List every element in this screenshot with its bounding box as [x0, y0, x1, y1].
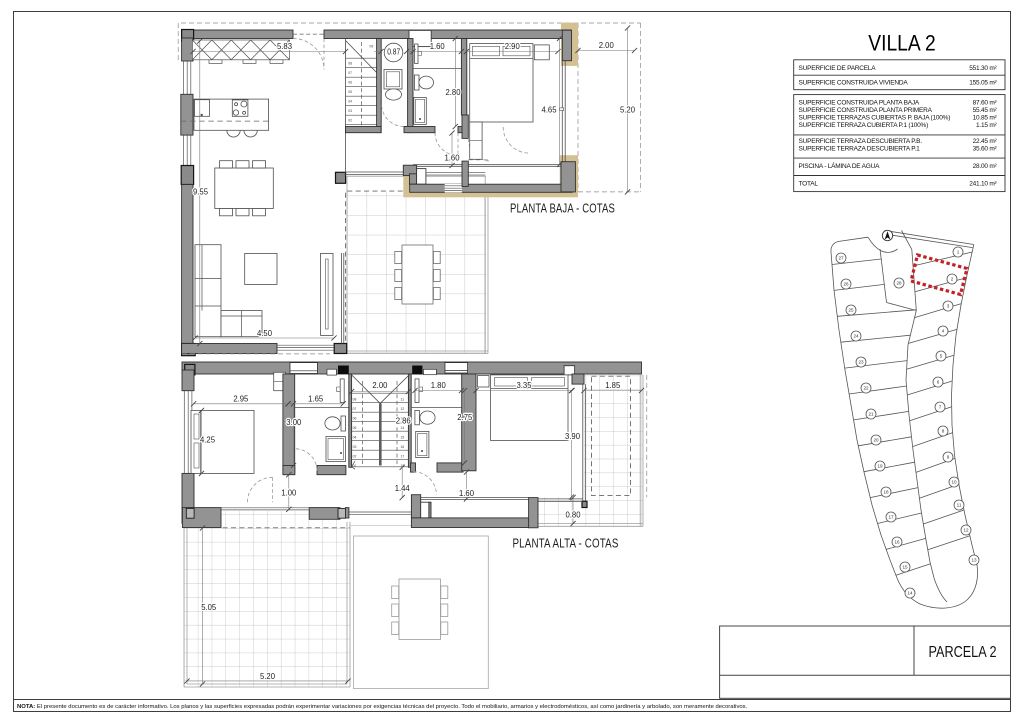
svg-text:16: 16 [894, 540, 900, 545]
svg-text:PLANTA ALTA - COTAS: PLANTA ALTA - COTAS [513, 537, 619, 551]
svg-text:5.05: 5.05 [201, 603, 217, 612]
svg-text:14: 14 [401, 426, 405, 430]
svg-text:2.86: 2.86 [396, 417, 412, 426]
svg-text:18: 18 [883, 490, 889, 495]
svg-text:04: 04 [353, 436, 357, 440]
svg-text:SUPERFICIE CONSTRUIDA PLANTA B: SUPERFICIE CONSTRUIDA PLANTA BAJA [799, 99, 920, 106]
svg-text:2.75: 2.75 [457, 413, 473, 422]
svg-text:35.60 m²: 35.60 m² [973, 146, 998, 153]
svg-text:07: 07 [348, 71, 352, 75]
svg-text:25: 25 [848, 308, 854, 313]
svg-text:1.15 m²: 1.15 m² [976, 122, 998, 129]
svg-text:SUPERFICIE TERRAZA CUBIERTA P.: SUPERFICIE TERRAZA CUBIERTA P.1 (100%) [799, 122, 929, 129]
svg-text:23: 23 [858, 360, 864, 365]
svg-text:0.80: 0.80 [566, 511, 582, 520]
svg-text:SUPERFICIE TERRAZAS CUBIERTAS: SUPERFICIE TERRAZAS CUBIERTAS P. BAJA (1… [799, 114, 951, 121]
svg-text:12: 12 [401, 407, 405, 411]
svg-text:03: 03 [348, 109, 352, 113]
svg-text:15: 15 [401, 436, 405, 440]
svg-text:06: 06 [348, 81, 352, 85]
svg-text:15: 15 [902, 565, 908, 570]
svg-text:4: 4 [942, 329, 945, 334]
svg-text:20: 20 [873, 438, 879, 443]
svg-text:VILLA 2: VILLA 2 [868, 30, 936, 55]
svg-text:SUPERFICIE CONSTRUIDA PLANTA P: SUPERFICIE CONSTRUIDA PLANTA PRIMERA [799, 107, 933, 114]
svg-text:5.20: 5.20 [260, 672, 276, 681]
svg-text:4.25: 4.25 [200, 436, 216, 445]
svg-text:PLANTA BAJA - COTAS: PLANTA BAJA - COTAS [510, 202, 615, 216]
svg-text:13: 13 [971, 558, 977, 563]
svg-text:10.85 m²: 10.85 m² [973, 114, 998, 121]
svg-text:5.83: 5.83 [277, 42, 293, 51]
svg-text:11: 11 [401, 398, 405, 402]
svg-text:55.45 m²: 55.45 m² [973, 107, 998, 114]
svg-text:06: 06 [353, 417, 357, 421]
svg-text:9: 9 [947, 455, 950, 460]
svg-text:155.05 m²: 155.05 m² [969, 80, 997, 87]
svg-text:241.10 m²: 241.10 m² [969, 181, 997, 188]
svg-text:3.90: 3.90 [565, 432, 581, 441]
svg-text:28: 28 [896, 281, 902, 286]
svg-text:SUPERFICIE CONSTRUIDA VIVIENDA: SUPERFICIE CONSTRUIDA VIVIENDA [799, 80, 909, 87]
svg-text:2.00: 2.00 [372, 381, 388, 390]
svg-text:09: 09 [370, 45, 374, 49]
svg-text:10: 10 [951, 480, 957, 485]
svg-text:1.44: 1.44 [395, 484, 411, 493]
svg-text:07: 07 [353, 407, 357, 411]
svg-text:2.80: 2.80 [446, 88, 462, 97]
svg-text:2.00: 2.00 [599, 41, 615, 50]
svg-text:17: 17 [888, 515, 894, 520]
svg-text:14: 14 [907, 591, 913, 596]
svg-text:2.95: 2.95 [233, 395, 249, 404]
svg-text:04: 04 [348, 100, 352, 104]
svg-text:5: 5 [940, 354, 943, 359]
svg-text:7: 7 [939, 405, 942, 410]
svg-text:12: 12 [963, 528, 969, 533]
svg-text:16: 16 [401, 445, 405, 449]
svg-text:SUPERFICIE DE PARCELA: SUPERFICIE DE PARCELA [799, 65, 877, 72]
svg-text:1: 1 [957, 250, 960, 255]
svg-text:SUPERFICIE TERRAZA DESCUBIERTA: SUPERFICIE TERRAZA DESCUBIERTA P.1 [799, 146, 921, 153]
svg-text:PISCINA - LÁMINA DE AGUA: PISCINA - LÁMINA DE AGUA [799, 161, 881, 170]
svg-text:08: 08 [348, 62, 352, 66]
svg-text:03: 03 [353, 445, 357, 449]
svg-text:551.30 m²: 551.30 m² [969, 65, 997, 72]
svg-text:2: 2 [951, 277, 954, 282]
svg-text:21: 21 [868, 412, 874, 417]
svg-text:11: 11 [957, 503, 962, 508]
svg-text:1.60: 1.60 [445, 154, 461, 163]
svg-text:8: 8 [942, 429, 945, 434]
svg-text:1.65: 1.65 [308, 395, 324, 404]
svg-text:17: 17 [401, 455, 405, 459]
svg-text:NOTA: El presente documento es: NOTA: El presente documento es de caráct… [17, 704, 748, 710]
svg-text:4.50: 4.50 [257, 329, 273, 338]
svg-text:4.65: 4.65 [542, 106, 558, 115]
svg-text:1.60: 1.60 [459, 489, 475, 498]
svg-text:05: 05 [348, 90, 352, 94]
svg-text:TOTAL: TOTAL [799, 181, 819, 188]
svg-text:1.85: 1.85 [605, 381, 621, 390]
svg-text:3: 3 [947, 304, 950, 309]
svg-text:3.35: 3.35 [517, 381, 533, 390]
svg-text:08: 08 [353, 398, 357, 402]
svg-text:SUPERFICIE TERRAZA DESCUBIERTA: SUPERFICIE TERRAZA DESCUBIERTA P.B. [799, 138, 923, 145]
svg-text:19: 19 [877, 464, 883, 469]
svg-text:1.00: 1.00 [281, 488, 297, 497]
svg-text:2.90: 2.90 [505, 42, 521, 51]
svg-text:28.00 m²: 28.00 m² [973, 163, 998, 170]
svg-text:22.45 m²: 22.45 m² [973, 138, 998, 145]
svg-text:PARCELA 2: PARCELA 2 [929, 644, 997, 661]
svg-text:0.87: 0.87 [387, 47, 400, 56]
svg-text:1.60: 1.60 [430, 42, 446, 51]
svg-text:87.60 m²: 87.60 m² [973, 99, 998, 106]
svg-text:02: 02 [353, 455, 357, 459]
svg-text:6: 6 [937, 380, 940, 385]
svg-text:5.20: 5.20 [620, 106, 636, 115]
svg-text:22: 22 [863, 386, 869, 391]
svg-text:24: 24 [853, 334, 859, 339]
svg-text:05: 05 [353, 426, 357, 430]
svg-text:26: 26 [843, 282, 849, 287]
svg-text:3.00: 3.00 [286, 418, 302, 427]
svg-text:27: 27 [838, 256, 844, 261]
svg-text:9.55: 9.55 [193, 188, 209, 197]
svg-text:02: 02 [348, 119, 352, 123]
svg-text:1.80: 1.80 [431, 381, 447, 390]
